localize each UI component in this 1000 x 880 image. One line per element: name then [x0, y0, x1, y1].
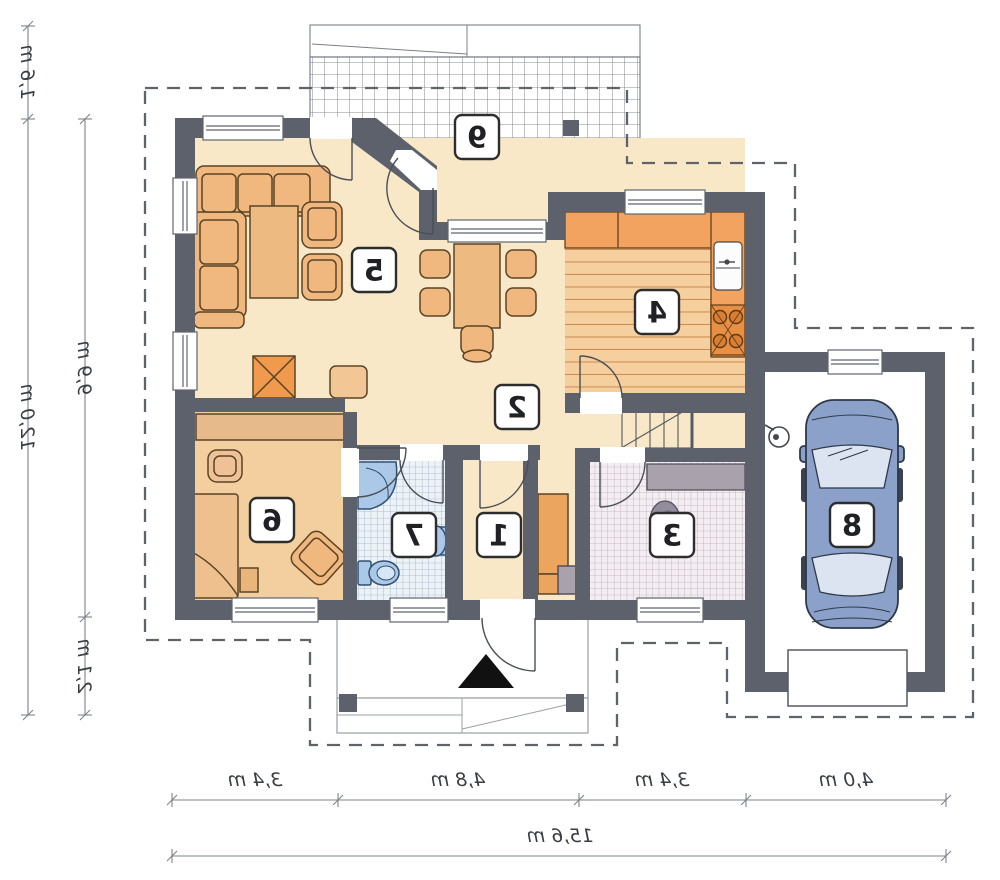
toilet: [358, 561, 399, 585]
room-label-kitchen: 4: [635, 290, 679, 334]
wall-bedroom-right: [343, 412, 357, 602]
fireplace: [253, 356, 295, 398]
room-number-7: 7: [404, 518, 424, 552]
room-label-utility: 3: [650, 513, 694, 557]
wall-garage-right: [925, 352, 945, 692]
window-bathroom: [390, 598, 448, 622]
tv-cabinet: [330, 366, 367, 398]
window-living-top: [203, 116, 283, 140]
stove: [711, 305, 745, 355]
hall-wardrobe-step: [538, 574, 560, 594]
bed: [192, 494, 238, 598]
kitchen-counter-top: [565, 212, 715, 248]
room-label-hall: 2: [495, 385, 539, 429]
room-label-bedroom: 6: [250, 498, 294, 542]
dim-label-9-9: 9,9 m: [73, 341, 95, 396]
kitchen-sink: [714, 242, 742, 290]
wall-bath-hall: [445, 460, 463, 602]
floor-plan-page: 1 2 3 4 5 6 7 8: [0, 0, 1000, 880]
wall-living-bedroom: [175, 398, 345, 412]
entry-porch: [337, 618, 588, 733]
bedroom-sideboard: [196, 414, 344, 440]
dim-bottom-total: 15,6 m: [167, 825, 951, 863]
coffee-table: [250, 206, 298, 298]
dim-bottom-segments: 3,4 m 4,8 m 3,4 m 4,0 m: [167, 769, 951, 807]
floor-plan-svg: 1 2 3 4 5 6 7 8: [0, 0, 1000, 880]
room-number-6: 6: [262, 503, 282, 537]
dim-label-2-1: 2,1 m: [73, 639, 95, 694]
utility-counter: [647, 464, 745, 490]
wall-kitchen-bottom: [622, 393, 745, 413]
dim-left-outer: 1,6 m 12,0 m: [16, 21, 38, 720]
dim-label-15-6: 15,6 m: [527, 825, 594, 847]
room-label-living: 5: [352, 248, 396, 292]
dim-label-3-4b: 3,4 m: [635, 769, 690, 791]
room-number-4: 4: [647, 295, 667, 329]
porch-post-right: [566, 694, 584, 712]
dim-left-inner: 9,9 m 2,1 m: [73, 114, 95, 720]
room-label-garage: 8: [830, 503, 874, 547]
terrace-post: [563, 120, 579, 136]
terrace-roof-band: [310, 25, 640, 57]
armchair-1: [302, 202, 342, 248]
wall-utility-left: [575, 462, 590, 602]
room-number-1: 1: [489, 518, 509, 552]
room-number-5: 5: [364, 253, 384, 287]
room-label-terrace: 9: [455, 115, 499, 159]
porch-post-left: [339, 694, 357, 712]
dim-label-3-4a: 3,4 m: [228, 769, 283, 791]
window-bedroom: [232, 598, 318, 622]
room-number-8: 8: [842, 508, 862, 542]
room-number-9: 9: [467, 120, 487, 154]
hall-wardrobe: [538, 494, 568, 574]
room-number-2: 2: [507, 390, 527, 424]
window-garage: [828, 350, 882, 374]
window-living-left-2: [173, 332, 197, 390]
nightstand: [240, 568, 258, 592]
garage-door: [788, 650, 907, 706]
car-windshield: [812, 553, 892, 596]
dim-label-1-6: 1,6 m: [16, 45, 38, 100]
bedroom-stool: [208, 450, 242, 482]
window-kitchen: [625, 190, 705, 214]
dining-table: [454, 244, 500, 328]
wall-hall-right: [523, 460, 538, 602]
dim-label-4-0: 4,0 m: [819, 769, 874, 791]
room-label-entry: 1: [477, 513, 521, 557]
window-living-left-1: [173, 178, 197, 234]
window-dining: [448, 220, 546, 242]
dim-label-12-0: 12,0 m: [16, 384, 38, 451]
room-number-3: 3: [662, 518, 682, 552]
window-utility: [637, 598, 703, 622]
dim-label-4-8: 4,8 m: [431, 769, 486, 791]
room-label-bathroom: 7: [392, 513, 436, 557]
armchair-2: [302, 254, 342, 300]
car-rear-window: [812, 445, 892, 488]
